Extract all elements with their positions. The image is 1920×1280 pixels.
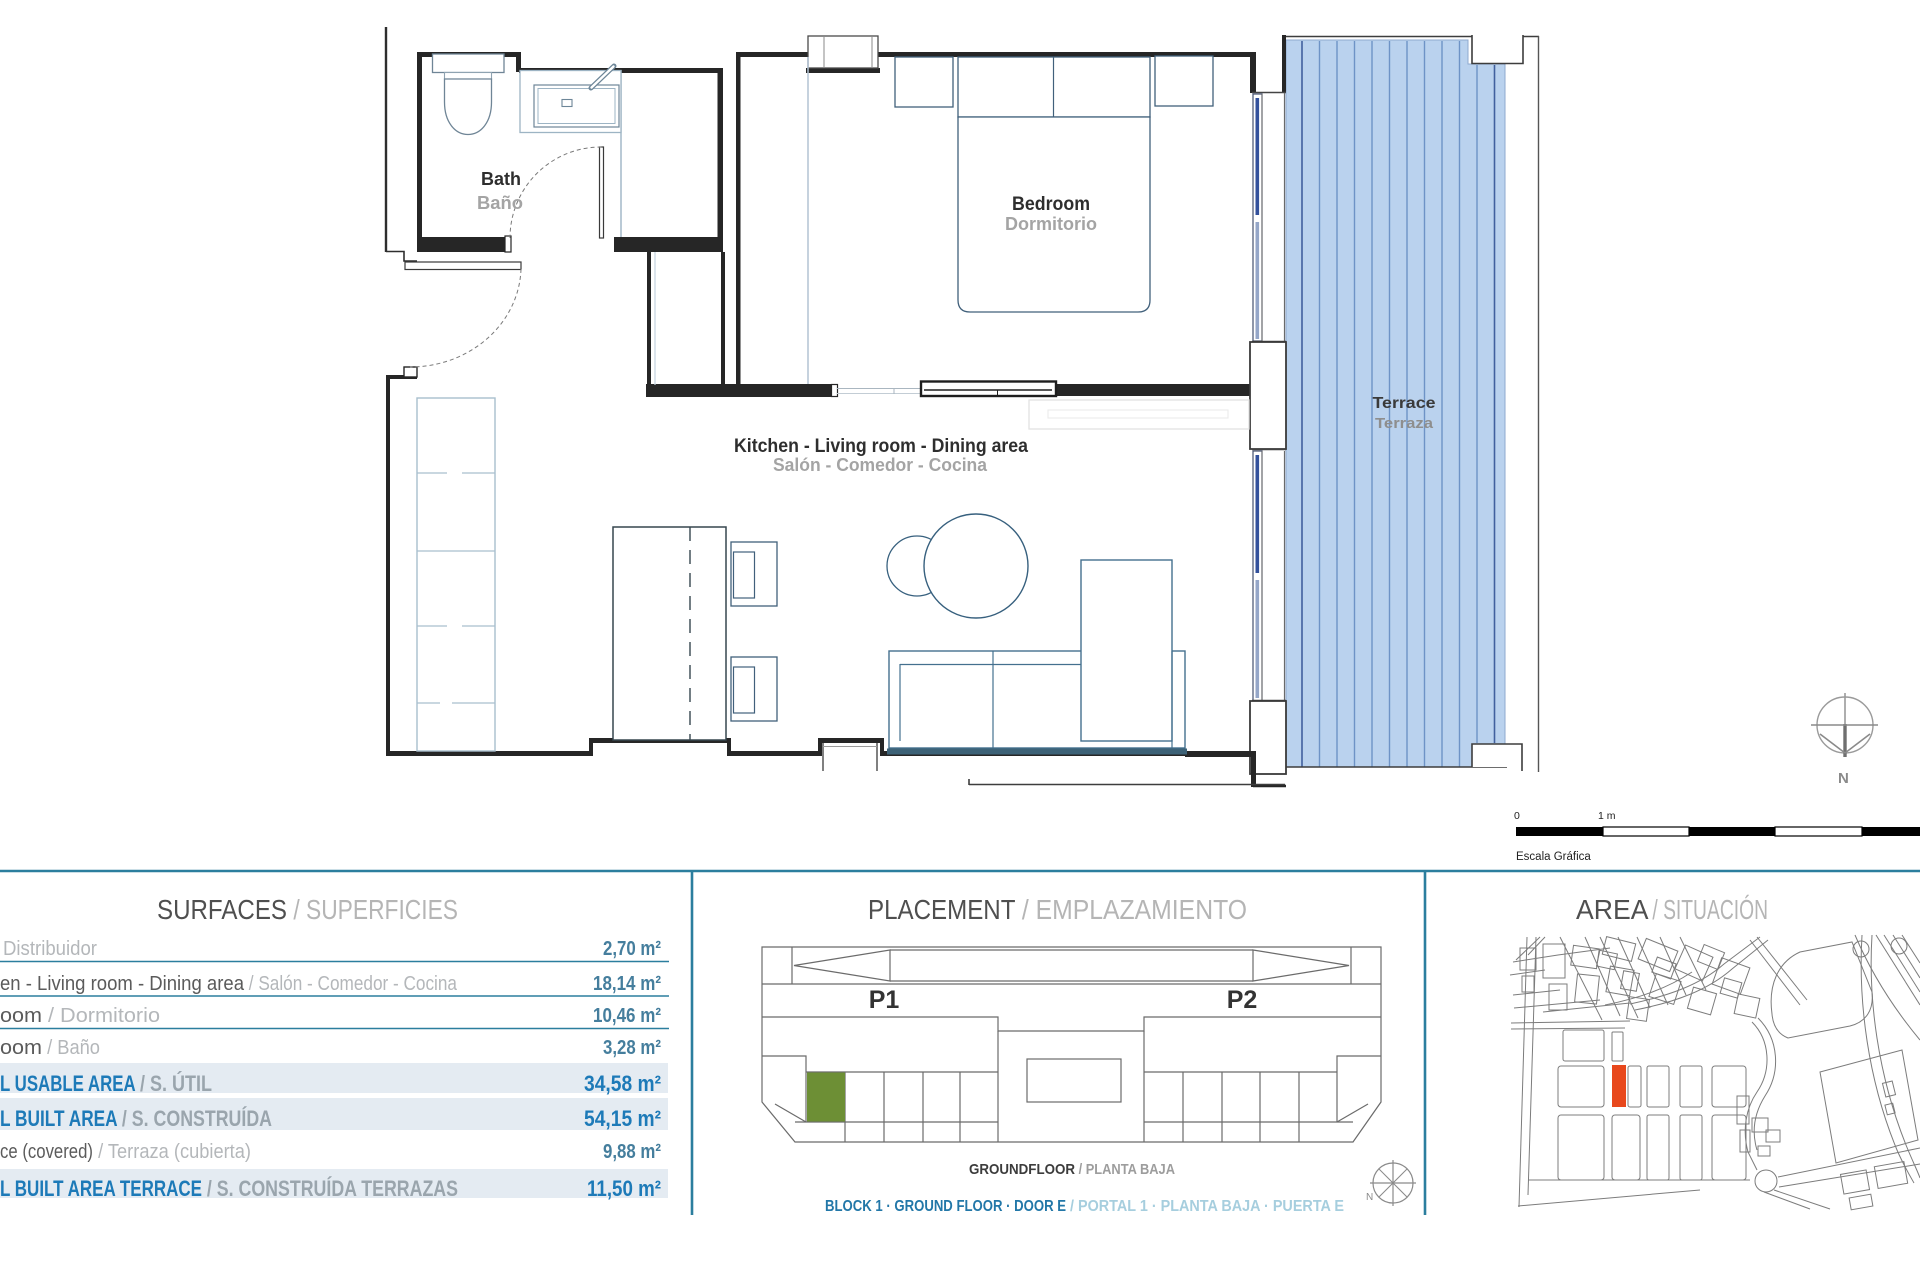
svg-text:Terraza: Terraza	[1375, 415, 1434, 432]
svg-text:GROUNDFLOOR / PLANTA BAJA: GROUNDFLOOR / PLANTA BAJA	[969, 1161, 1175, 1178]
svg-text:N: N	[1838, 770, 1849, 787]
svg-text:L BUILT AREA / S. CONSTRUÍDA: L BUILT AREA / S. CONSTRUÍDA	[0, 1106, 272, 1131]
svg-text:34,58 m²: 34,58 m²	[584, 1071, 661, 1096]
svg-text:Kitchen - Living room - Dining: Kitchen - Living room - Dining area	[734, 436, 1028, 457]
svg-text:11,50 m²: 11,50 m²	[587, 1176, 661, 1201]
svg-text:1 m: 1 m	[1598, 810, 1616, 822]
svg-text:Bath: Bath	[481, 169, 521, 189]
svg-text:ce (covered) / Terraza (cubier: ce (covered) / Terraza (cubierta)	[0, 1141, 251, 1163]
svg-text:AREA / SITUACIÓN: AREA / SITUACIÓN	[1576, 894, 1768, 925]
svg-text:BLOCK 1 · GROUND FLOOR · DOOR: BLOCK 1 · GROUND FLOOR · DOOR E / PORTAL…	[825, 1198, 1344, 1215]
svg-text:54,15 m²: 54,15 m²	[584, 1106, 661, 1131]
svg-text:PLACEMENT / EMPLAZAMIENTO: PLACEMENT / EMPLAZAMIENTO	[868, 894, 1247, 925]
svg-text:SURFACES / SUPERFICIES: SURFACES / SUPERFICIES	[157, 894, 458, 925]
svg-text:oom / Baño: oom / Baño	[0, 1037, 100, 1059]
svg-text:10,46 m²: 10,46 m²	[593, 1005, 661, 1027]
svg-text:Baño: Baño	[477, 193, 523, 213]
svg-text:L BUILT AREA TERRACE / S. CONS: L BUILT AREA TERRACE / S. CONSTRUÍDA TER…	[0, 1176, 458, 1201]
svg-text:Dormitorio: Dormitorio	[1005, 214, 1097, 234]
svg-text:2,70 m²: 2,70 m²	[603, 938, 661, 960]
svg-text:P2: P2	[1227, 986, 1258, 1014]
svg-text:Salón - Comedor - Cocina: Salón - Comedor - Cocina	[773, 455, 988, 475]
svg-text:3,28 m²: 3,28 m²	[603, 1037, 661, 1059]
svg-text:oom / Dormitorio: oom / Dormitorio	[0, 1005, 160, 1027]
svg-text:L USABLE AREA / S. ÚTIL: L USABLE AREA / S. ÚTIL	[0, 1071, 212, 1096]
svg-text:Terrace: Terrace	[1373, 395, 1436, 412]
svg-text:Distribuidor: Distribuidor	[3, 938, 97, 960]
svg-text:0: 0	[1514, 810, 1520, 822]
svg-text:N: N	[1366, 1192, 1373, 1203]
svg-text:Escala Gráfica: Escala Gráfica	[1516, 851, 1591, 863]
svg-text:18,14 m²: 18,14 m²	[593, 973, 661, 995]
svg-text:Bedroom: Bedroom	[1012, 194, 1090, 215]
svg-text:P1: P1	[869, 986, 900, 1014]
svg-text:9,88 m²: 9,88 m²	[603, 1141, 661, 1163]
svg-text:en - Living room - Dining area: en - Living room - Dining area / Salón -…	[0, 973, 458, 995]
